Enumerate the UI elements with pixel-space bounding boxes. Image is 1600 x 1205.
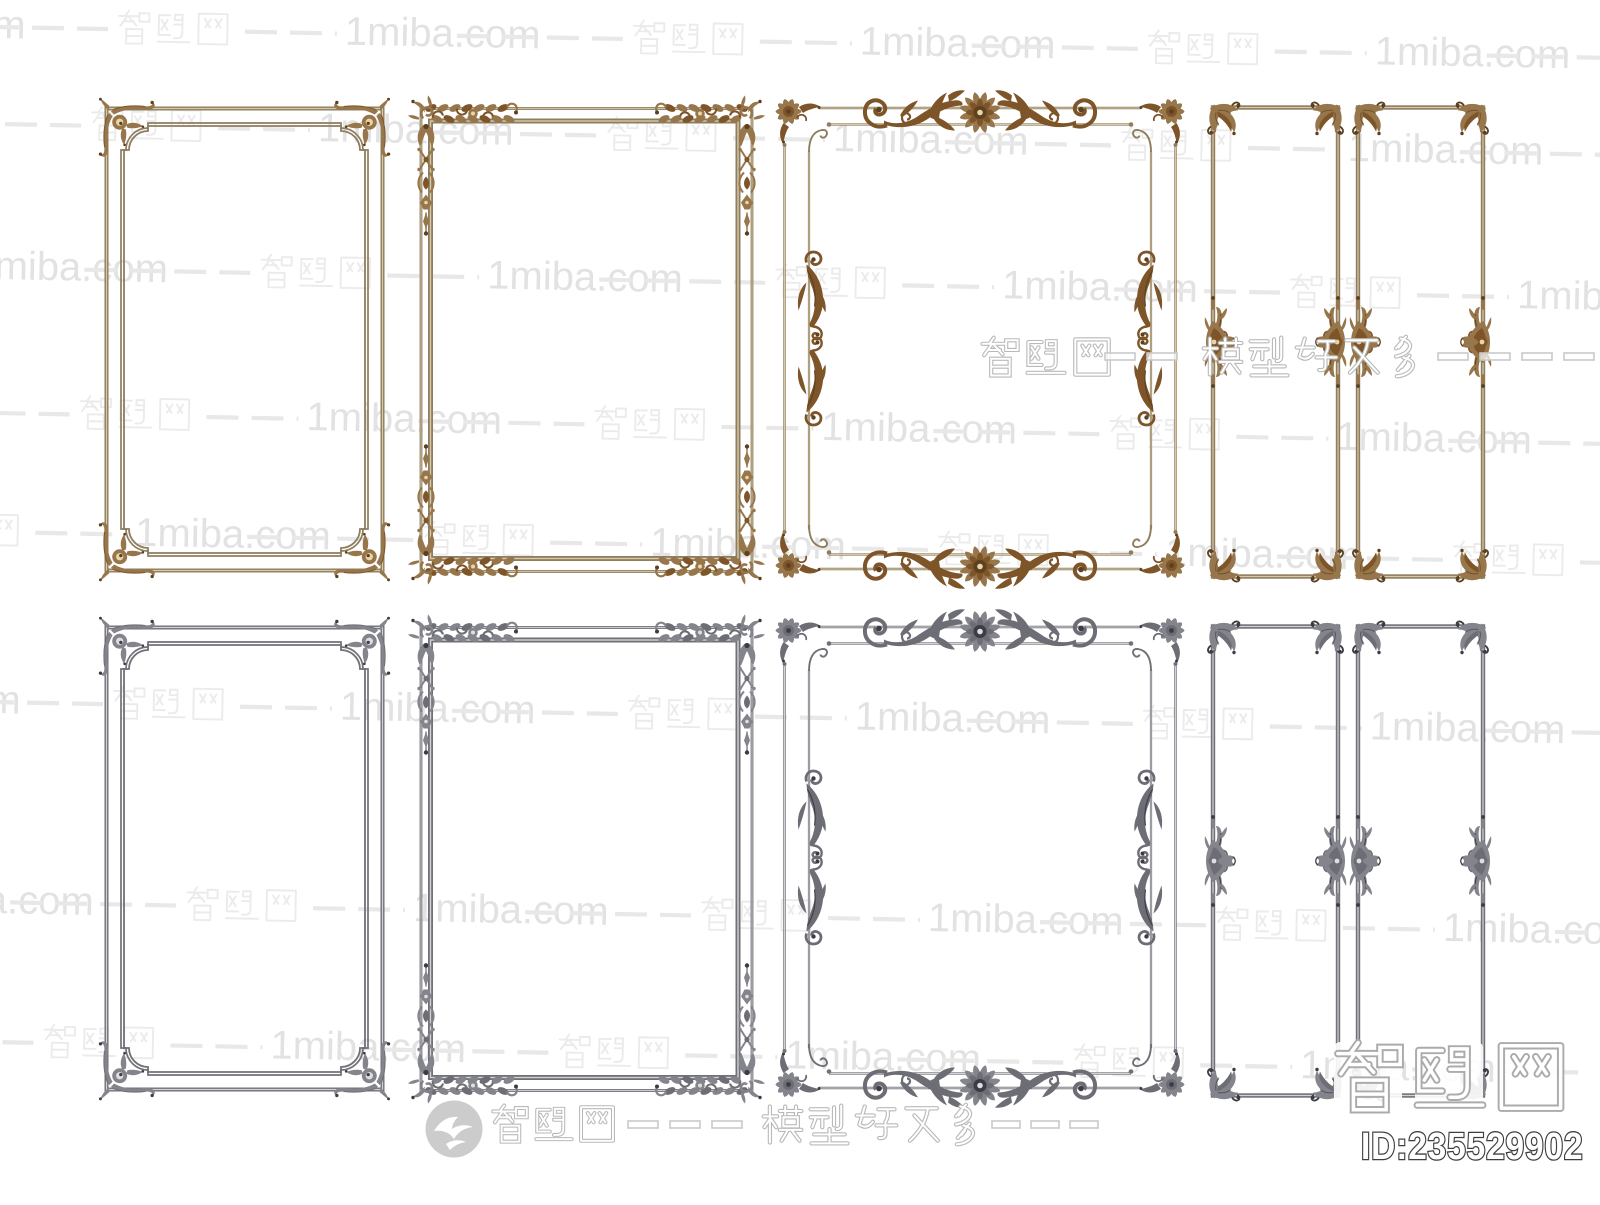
svg-text:1miba.com: 1miba.com bbox=[0, 0, 26, 47]
svg-text:1miba.com: 1miba.com bbox=[0, 244, 168, 292]
svg-text:ID:235529902: ID:235529902 bbox=[1361, 1125, 1583, 1167]
svg-text:1miba.com: 1miba.com bbox=[306, 395, 502, 443]
svg-text:1miba.com: 1miba.com bbox=[1443, 906, 1600, 954]
svg-text:1miba.com: 1miba.com bbox=[928, 896, 1124, 944]
svg-text:1miba.com: 1miba.com bbox=[413, 886, 609, 934]
svg-text:1miba.com: 1miba.com bbox=[0, 675, 21, 723]
svg-text:1miba.com: 1miba.com bbox=[833, 116, 1029, 164]
svg-text:1miba.com: 1miba.com bbox=[340, 685, 536, 733]
svg-text:1miba.com: 1miba.com bbox=[854, 695, 1050, 743]
svg-text:1miba.com: 1miba.com bbox=[487, 253, 683, 301]
svg-text:1miba.com: 1miba.com bbox=[0, 876, 94, 924]
svg-text:1miba.com: 1miba.com bbox=[345, 10, 541, 58]
svg-text:1miba.com: 1miba.com bbox=[821, 405, 1017, 453]
svg-text:1miba.com: 1miba.com bbox=[1369, 704, 1565, 752]
svg-text:1miba.com: 1miba.com bbox=[1517, 273, 1600, 321]
svg-text:1miba.com: 1miba.com bbox=[1374, 29, 1570, 77]
svg-text:1miba.com: 1miba.com bbox=[1002, 263, 1198, 311]
svg-text:1miba.com: 1miba.com bbox=[859, 20, 1055, 68]
svg-text:1miba.com: 1miba.com bbox=[135, 511, 331, 559]
svg-text:1miba.com: 1miba.com bbox=[1336, 415, 1532, 463]
svg-text:1miba.com: 1miba.com bbox=[1347, 126, 1543, 174]
